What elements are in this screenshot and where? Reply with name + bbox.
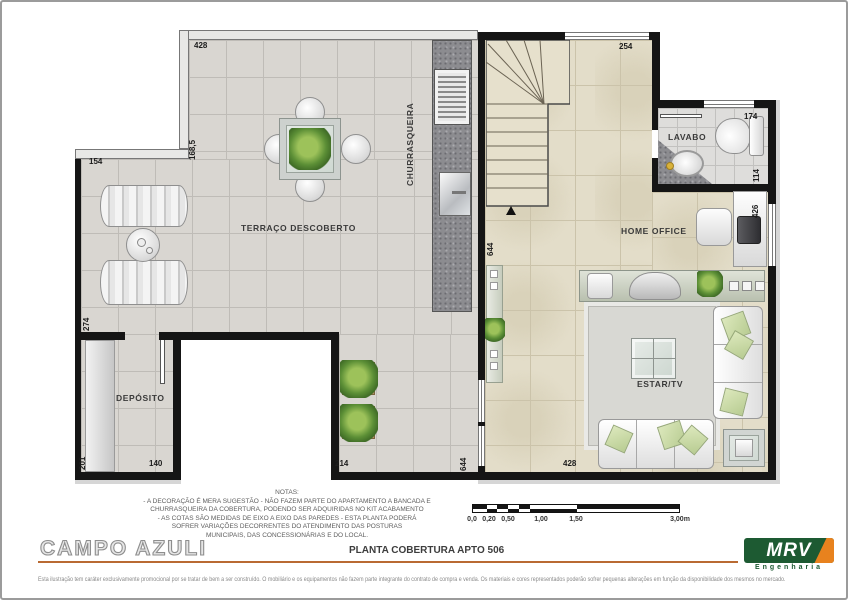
console-object xyxy=(629,272,681,300)
office-chair xyxy=(696,208,732,246)
deposito-door-leaf xyxy=(160,338,165,384)
scale-segment xyxy=(577,505,679,509)
tv-icon xyxy=(587,273,613,299)
wall xyxy=(768,100,776,480)
sofa-seat-line xyxy=(714,382,762,383)
dim-label: 214 xyxy=(335,459,348,468)
wall xyxy=(173,332,181,480)
toilet-bowl-icon xyxy=(715,118,751,154)
sliding-door-glass xyxy=(478,380,485,422)
window xyxy=(704,100,754,108)
notes-line: - A DECORAÇÃO É MERA SUGESTÃO - NÃO FAZE… xyxy=(127,498,447,507)
deposito-slab xyxy=(85,340,115,472)
sink-icon xyxy=(439,172,471,216)
console-box xyxy=(755,281,765,291)
notes-block: NOTAS: - A DECORAÇÃO É MERA SUGESTÃO - N… xyxy=(127,489,447,540)
wall xyxy=(652,108,658,130)
console-box xyxy=(742,281,752,291)
terrace-chair xyxy=(341,134,371,164)
notes-line: CHURRASQUEIRA DA COBERTURA, PODENDO SER … xyxy=(127,506,447,515)
window xyxy=(768,204,776,266)
staircase xyxy=(486,40,570,208)
project-title: CAMPO AZULI xyxy=(40,537,207,561)
dim-label: 428 xyxy=(563,459,576,468)
console-plant-icon xyxy=(697,271,723,297)
scale-tick-label: 3,00m xyxy=(670,516,690,523)
drawing-title: PLANTA COBERTURA APTO 506 xyxy=(349,545,504,556)
scale-segment xyxy=(519,505,530,509)
scale-tick-label: 1,50 xyxy=(569,516,583,523)
computer-icon xyxy=(737,216,761,244)
sideboard-box xyxy=(490,282,498,290)
lounge-chair xyxy=(100,185,188,227)
dim-label: 201 xyxy=(78,446,87,470)
dim-label: 140 xyxy=(149,459,162,468)
scale-labels: 0,0 0,20 0,50 1,00 1,50 3,00m xyxy=(2,516,848,526)
mrv-logo: MRV Engenharia xyxy=(744,538,834,572)
coffee-table-divider xyxy=(632,358,675,359)
lounge-chair xyxy=(100,260,188,305)
wall xyxy=(75,332,125,340)
dim-label: 154 xyxy=(89,157,102,166)
dim-label: 426 xyxy=(751,192,760,218)
sideboard-box xyxy=(490,362,498,370)
wall-face xyxy=(75,480,181,484)
dim-label: 174 xyxy=(744,112,757,121)
lavabo-door-leaf xyxy=(660,114,702,118)
potted-plant-icon xyxy=(289,128,331,170)
room-label-estar: ESTAR/TV xyxy=(637,379,683,389)
room-label-home-office: HOME OFFICE xyxy=(621,226,687,236)
scale-segment xyxy=(542,509,577,513)
room-label-churrasqueira: CHURRASQUEIRA xyxy=(405,96,415,186)
window xyxy=(565,32,649,40)
dim-label: 274 xyxy=(82,305,91,331)
toilet-tank-icon xyxy=(749,116,764,156)
wall xyxy=(652,32,660,108)
wall xyxy=(165,332,339,340)
footer-rule xyxy=(38,561,738,563)
notes-title: NOTAS: xyxy=(127,489,447,498)
console-box xyxy=(729,281,739,291)
scale-tick-label: 0,20 xyxy=(482,516,496,523)
sideboard-box xyxy=(490,350,498,358)
scale-segment xyxy=(530,509,542,513)
scale-segment xyxy=(473,505,487,509)
grill-icon xyxy=(435,70,469,124)
dim-label: 168,5 xyxy=(188,122,197,160)
scale-tick-label: 0,50 xyxy=(501,516,515,523)
room-label-deposito: DEPÓSITO xyxy=(116,393,165,403)
dim-label: 254 xyxy=(619,42,632,51)
planter-shrub-icon xyxy=(340,404,378,442)
legal-disclaimer: Esta ilustração tem caráter exclusivamen… xyxy=(38,576,785,583)
mrv-logo-text: MRV xyxy=(744,538,834,563)
planter-shrub-icon xyxy=(340,360,378,398)
parapet-wall xyxy=(179,30,478,40)
wall xyxy=(75,472,179,480)
dim-label: 114 xyxy=(752,158,761,182)
sideboard-box xyxy=(490,270,498,278)
wall xyxy=(478,472,776,480)
wall xyxy=(331,472,485,480)
scale-tick-label: 0,0 xyxy=(467,516,477,523)
room-label-lavabo: LAVABO xyxy=(668,132,706,142)
scale-segment xyxy=(497,505,508,509)
faucet-icon xyxy=(452,191,466,194)
scale-bar xyxy=(472,504,680,513)
wall xyxy=(75,155,81,480)
table-dot xyxy=(146,247,153,254)
mrv-logo-box: MRV xyxy=(744,538,834,563)
dim-label: 644 xyxy=(486,230,495,256)
wall xyxy=(331,332,339,480)
sliding-door-glass xyxy=(478,426,485,466)
stair-direction-arrow-icon xyxy=(506,206,516,215)
room-label-terraco: TERRAÇO DESCOBERTO xyxy=(241,223,356,233)
wall-face xyxy=(478,480,780,484)
sideboard-plant-icon xyxy=(485,318,505,342)
scale-tick-label: 1,00 xyxy=(534,516,548,523)
floor-plan-sheet: TERRAÇO DESCOBERTO CHURRASQUEIRA DEPÓSIT… xyxy=(0,0,848,600)
scale-segment xyxy=(487,509,497,513)
scale-segment xyxy=(508,509,519,513)
soap-icon xyxy=(666,162,674,170)
wall-face xyxy=(776,100,780,484)
dim-label: 644 xyxy=(459,445,468,471)
mrv-logo-tagline: Engenharia xyxy=(744,564,834,571)
terrace-floor xyxy=(339,334,478,472)
corner-table-detail xyxy=(735,439,753,457)
washbasin-icon xyxy=(670,150,704,177)
sofa-seat-line xyxy=(636,420,637,468)
table-dot xyxy=(137,238,146,247)
dim-label: 428 xyxy=(194,41,207,50)
